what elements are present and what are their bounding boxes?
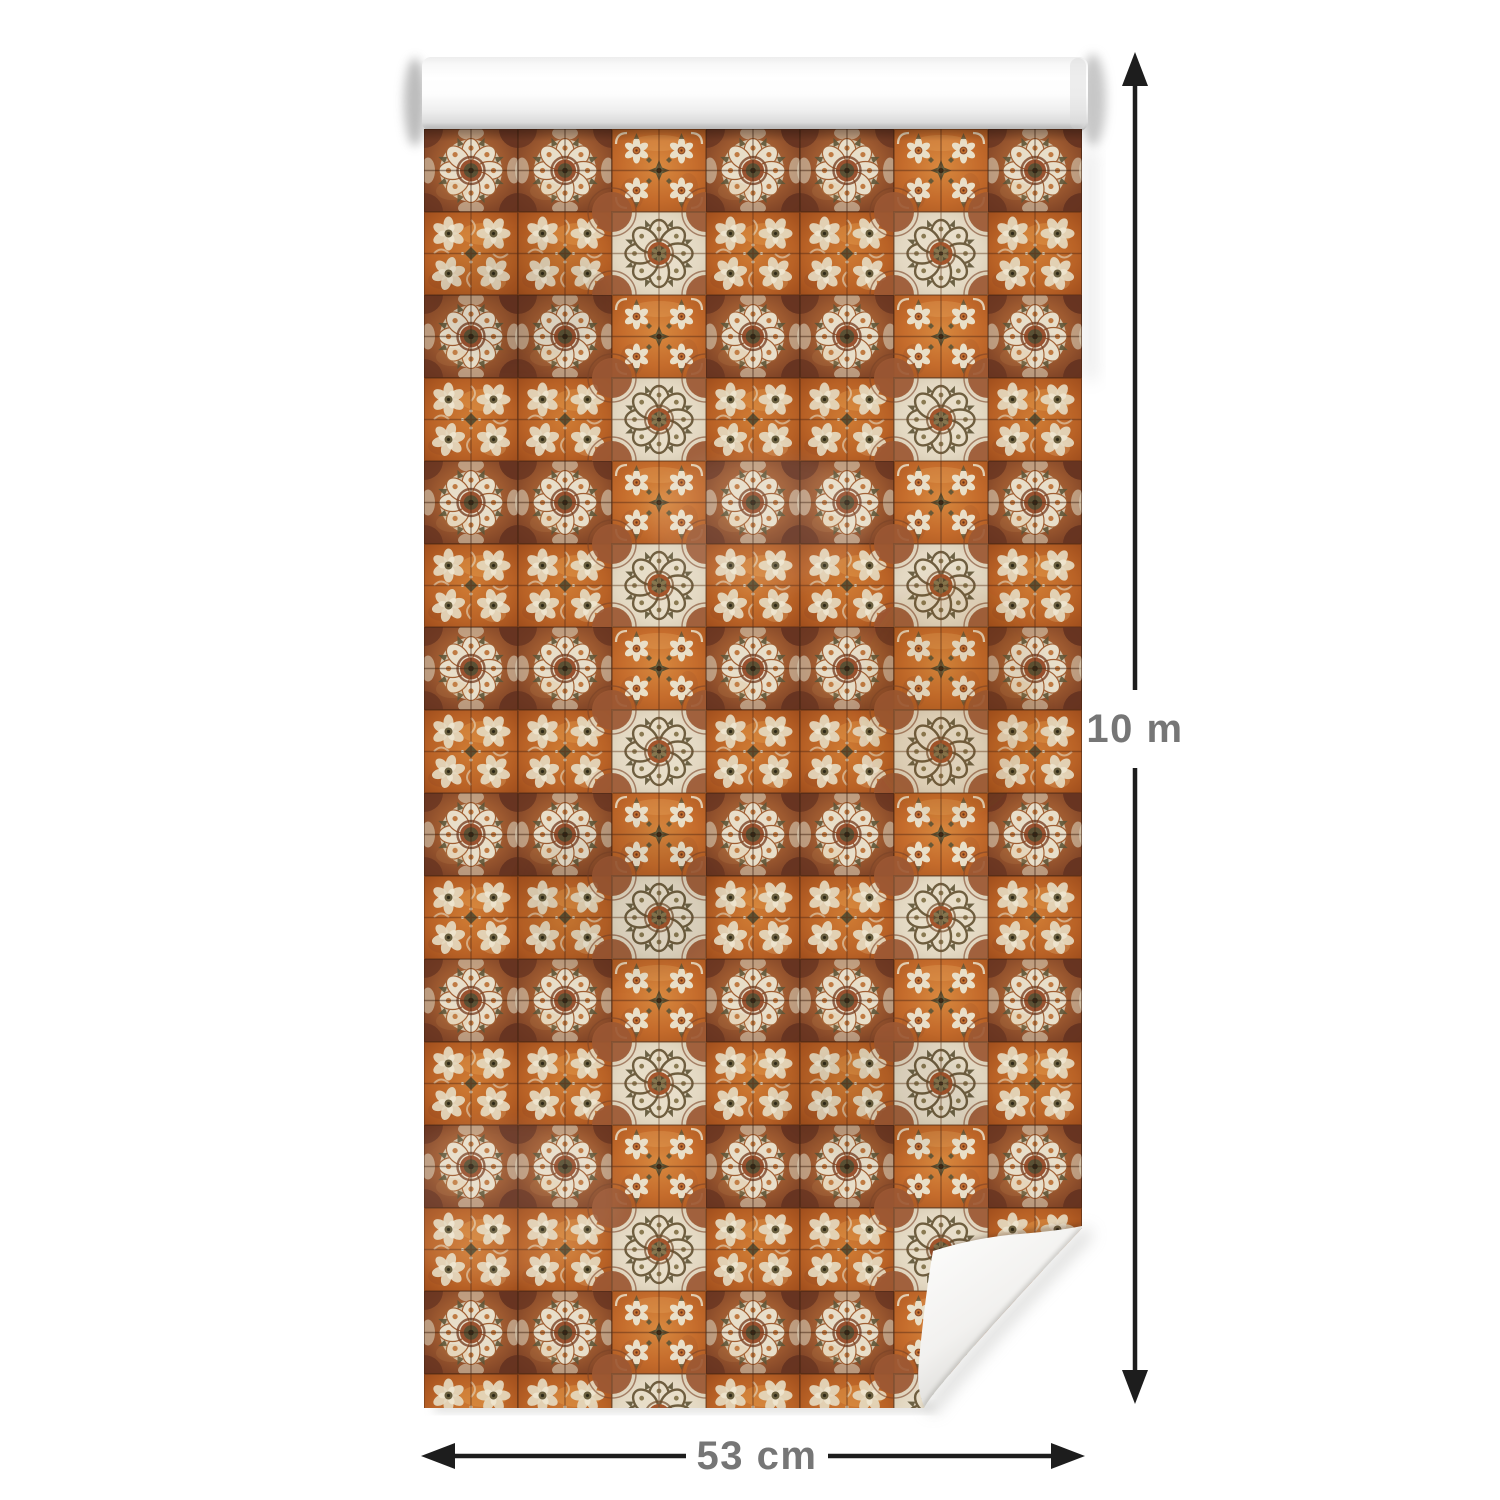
width-label: 53 cm — [697, 1434, 818, 1478]
wallpaper-product-photo: 10 m 53 cm — [0, 0, 1500, 1500]
wallpaper-sheet — [380, 129, 1095, 1418]
product-image: 10 m 53 cm — [0, 0, 1500, 1500]
roll-cylinder — [422, 57, 1088, 131]
roll-contact-shadow — [424, 129, 1082, 141]
height-label: 10 m — [1086, 707, 1183, 751]
